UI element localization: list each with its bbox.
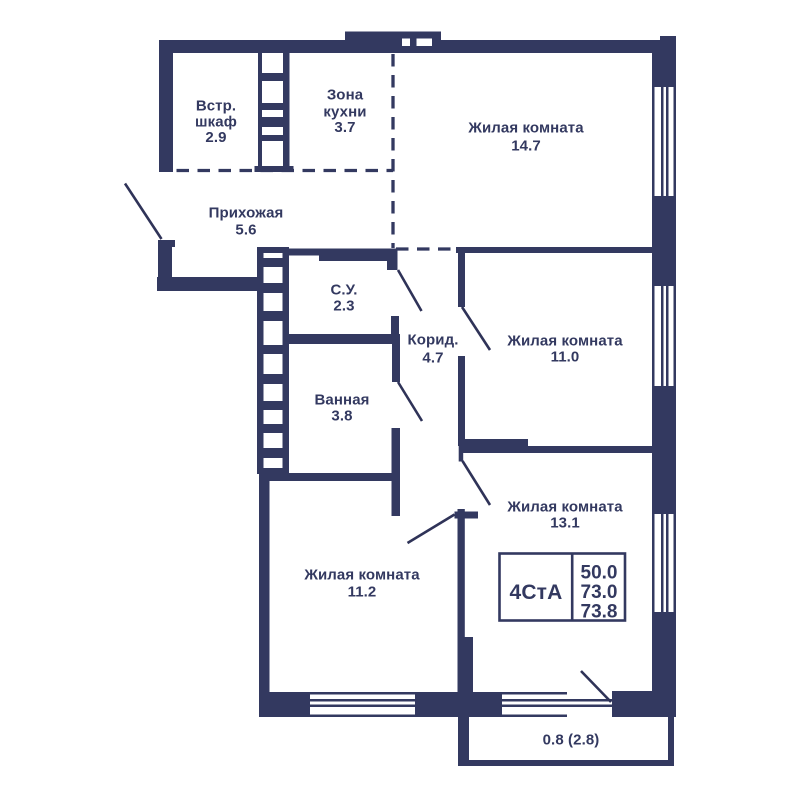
svg-text:кухни: кухни bbox=[323, 104, 366, 121]
svg-text:2.3: 2.3 bbox=[333, 298, 354, 315]
svg-text:0.8 (2.8): 0.8 (2.8) bbox=[543, 732, 600, 749]
svg-text:Жилая комната: Жилая комната bbox=[506, 333, 623, 350]
svg-text:14.7: 14.7 bbox=[511, 138, 541, 155]
svg-text:Жилая комната: Жилая комната bbox=[467, 120, 584, 137]
svg-text:Корид.: Корид. bbox=[408, 332, 459, 349]
svg-text:73.0: 73.0 bbox=[581, 582, 618, 603]
svg-text:5.6: 5.6 bbox=[235, 222, 256, 239]
svg-text:С.У.: С.У. bbox=[330, 282, 357, 299]
svg-text:Прихожая: Прихожая bbox=[209, 205, 284, 222]
svg-text:шкаф: шкаф bbox=[195, 114, 237, 131]
svg-text:4.7: 4.7 bbox=[422, 350, 443, 367]
svg-text:Ванная: Ванная bbox=[315, 392, 370, 409]
svg-text:11.2: 11.2 bbox=[348, 584, 377, 601]
svg-text:Жилая комната: Жилая комната bbox=[506, 499, 623, 516]
svg-text:13.1: 13.1 bbox=[550, 515, 580, 532]
svg-text:73.8: 73.8 bbox=[581, 602, 618, 623]
svg-text:3.8: 3.8 bbox=[331, 408, 352, 425]
svg-text:Жилая комната: Жилая комната bbox=[303, 567, 420, 584]
svg-text:Встр.: Встр. bbox=[196, 98, 236, 115]
svg-text:11.0: 11.0 bbox=[551, 349, 580, 366]
svg-text:4СтА: 4СтА bbox=[509, 581, 562, 604]
svg-text:50.0: 50.0 bbox=[581, 563, 618, 584]
svg-text:Зона: Зона bbox=[327, 87, 364, 104]
svg-text:2.9: 2.9 bbox=[205, 129, 226, 146]
svg-text:3.7: 3.7 bbox=[334, 119, 355, 136]
